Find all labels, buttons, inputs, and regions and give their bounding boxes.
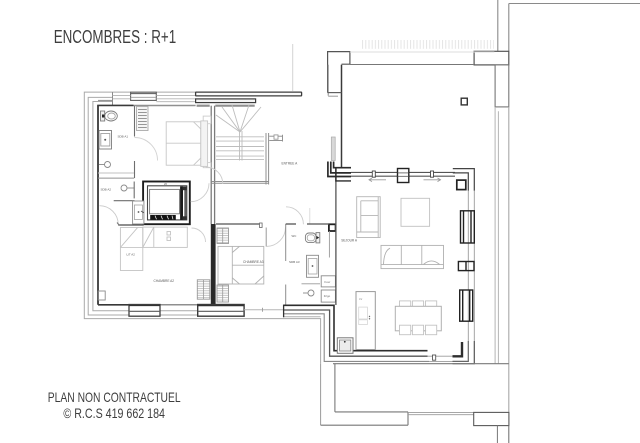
svg-text:LV: LV (359, 297, 362, 301)
svg-text:© R.C.S 419 662 184: © R.C.S 419 662 184 (63, 406, 165, 421)
svg-text:ENCOMBRES : R+1: ENCOMBRES : R+1 (54, 26, 177, 47)
svg-text:Four: Four (325, 280, 331, 284)
svg-text:ENTREE A: ENTREE A (282, 162, 299, 166)
svg-text:Frigo: Frigo (324, 294, 331, 298)
svg-text:LIT A2: LIT A2 (127, 253, 136, 257)
svg-text:SDB A1: SDB A1 (118, 135, 129, 139)
svg-text:SDB A3: SDB A3 (289, 260, 300, 264)
svg-text:WC: WC (292, 234, 297, 238)
svg-text:CHAMBRE A2: CHAMBRE A2 (154, 279, 175, 283)
svg-text:PLAN NON CONTRACTUEL: PLAN NON CONTRACTUEL (48, 390, 181, 405)
svg-text:SDB A2: SDB A2 (101, 188, 112, 192)
svg-text:SEJOUR A: SEJOUR A (341, 238, 358, 242)
svg-text:CHAMBRE A3: CHAMBRE A3 (243, 260, 264, 264)
